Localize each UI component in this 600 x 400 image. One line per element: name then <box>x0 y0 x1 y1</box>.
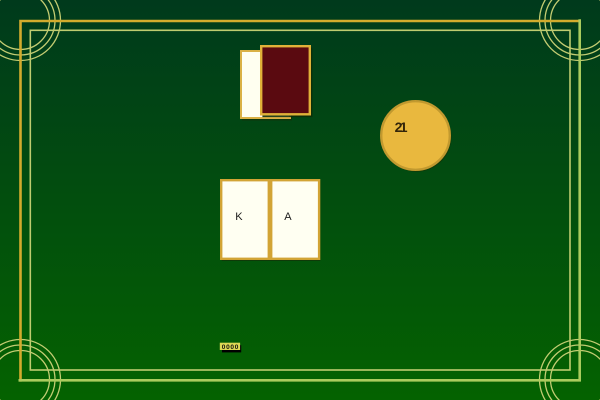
svg-text:A: A <box>284 211 292 223</box>
svg-text:0000: 0000 <box>222 344 239 351</box>
svg-text:K: K <box>235 211 243 223</box>
